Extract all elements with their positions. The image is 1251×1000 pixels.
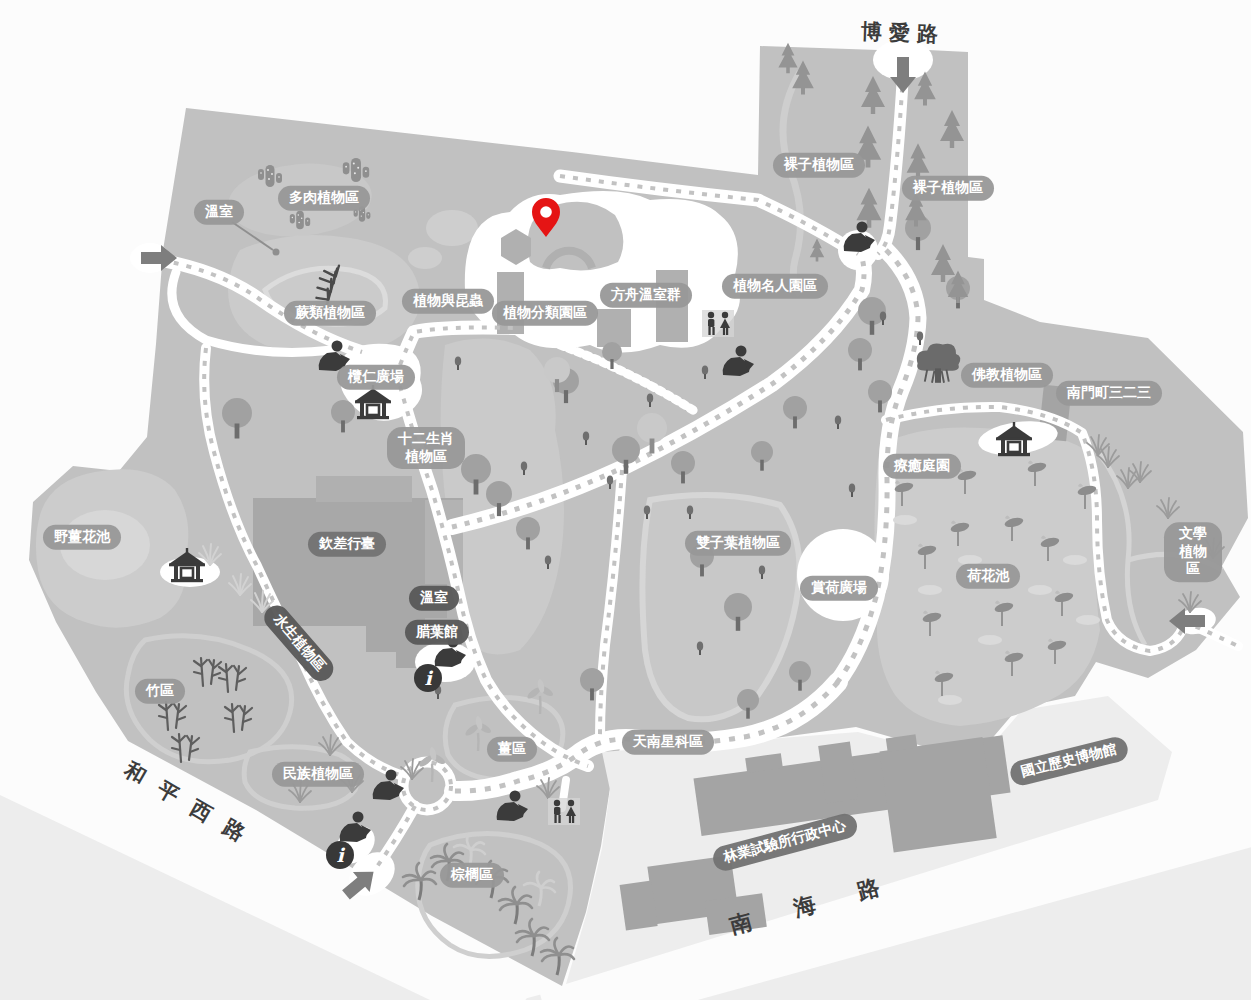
restroom-icon: [548, 798, 580, 825]
restroom-icon: [702, 310, 734, 337]
info-icon: [414, 664, 442, 692]
lilypad-icon: [893, 515, 917, 525]
lilypad-icon: [938, 695, 962, 705]
lilypad-icon: [958, 555, 982, 565]
map-canvas: i: [0, 0, 1251, 1000]
info-icon: [326, 841, 354, 869]
lilypad-icon: [1028, 585, 1052, 595]
lilypad-icon: [978, 635, 1002, 645]
lilypad-icon: [1063, 555, 1087, 565]
lilypad-icon: [918, 585, 942, 595]
botanical-garden-map: i: [0, 0, 1251, 1000]
lilypad-icon: [1076, 615, 1100, 625]
